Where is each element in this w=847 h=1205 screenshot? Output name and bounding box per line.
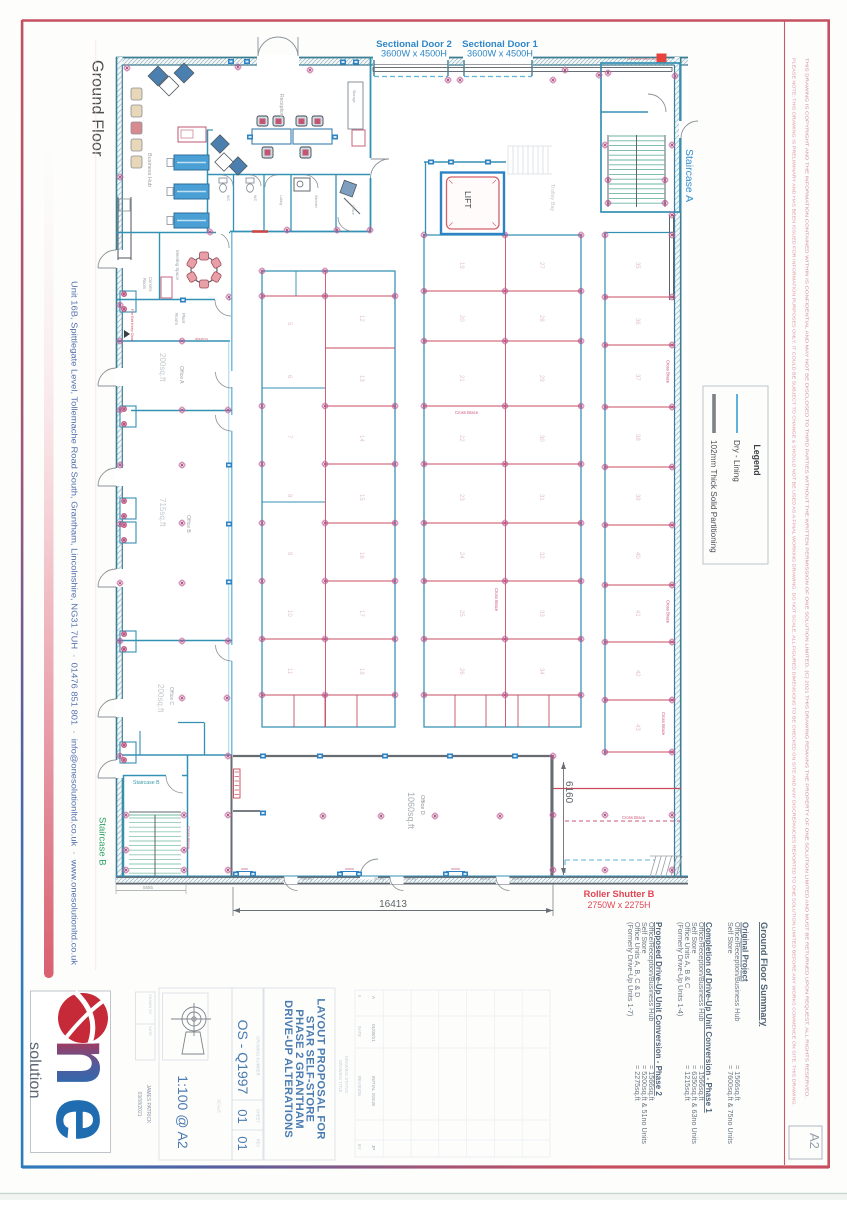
svg-text:38: 38 xyxy=(634,434,640,441)
svg-text:glazing: glazing xyxy=(270,877,280,881)
svg-text:Comms: Comms xyxy=(148,277,153,291)
svg-text:WC: WC xyxy=(253,195,257,202)
svg-text:102mm Thick Solid Partitioning: 102mm Thick Solid Partitioning xyxy=(709,440,718,553)
svg-text:Office A: Office A xyxy=(178,366,184,384)
svg-text:6160: 6160 xyxy=(563,781,574,804)
svg-text:Dry - Lining: Dry - Lining xyxy=(732,440,741,482)
svg-text:3600W x 4500H: 3600W x 4500H xyxy=(467,49,533,59)
svg-text:Ground Floor Summary: Ground Floor Summary xyxy=(759,922,769,1027)
svg-text:DRAWING TITLE: DRAWING TITLE xyxy=(338,1060,343,1093)
svg-text:Self Store: Self Store xyxy=(726,922,735,954)
svg-text:22: 22 xyxy=(458,435,464,442)
svg-text:Office C: Office C xyxy=(168,687,174,705)
svg-text:Cross Brace: Cross Brace xyxy=(622,815,646,820)
svg-text:39: 39 xyxy=(634,494,640,501)
svg-text:= 1215sq.ft: = 1215sq.ft xyxy=(683,1065,692,1101)
svg-text:glazing: glazing xyxy=(406,877,416,881)
svg-text:REV: REV xyxy=(256,1139,261,1148)
svg-text:Staircase A: Staircase A xyxy=(683,149,695,202)
svg-text:03/08/2021: 03/08/2021 xyxy=(136,1091,142,1116)
svg-text:13: 13 xyxy=(358,375,364,382)
svg-text:DRAWING STATUS: DRAWING STATUS xyxy=(344,1056,349,1093)
svg-text:JP: JP xyxy=(371,1145,376,1150)
svg-text:16: 16 xyxy=(358,552,364,559)
svg-text:31: 31 xyxy=(538,494,544,501)
svg-text:25: 25 xyxy=(458,610,464,617)
svg-text:Plant: Plant xyxy=(181,313,186,324)
svg-text:(Formerly Drive-Up Units 1-4): (Formerly Drive-Up Units 1-4) xyxy=(676,922,685,1016)
svg-text:Staircase B: Staircase B xyxy=(133,780,160,786)
svg-text:36: 36 xyxy=(634,318,640,325)
svg-text:BY: BY xyxy=(357,1144,362,1150)
svg-text:Unit 16B, Spittlegate Level, T: Unit 16B, Spittlegate Level, Tollemache … xyxy=(70,281,80,966)
svg-text:SCALE: SCALE xyxy=(217,1099,222,1113)
svg-text:01: 01 xyxy=(235,1136,250,1150)
svg-text:24: 24 xyxy=(458,552,464,559)
svg-text:glazing: glazing xyxy=(302,877,312,881)
svg-text:42: 42 xyxy=(634,670,640,677)
svg-text:200sq.ft: 200sq.ft xyxy=(158,353,167,382)
svg-text:glazing: glazing xyxy=(512,877,522,881)
svg-text:glazing: glazing xyxy=(195,336,208,341)
svg-text:Staircase B: Staircase B xyxy=(97,817,108,866)
svg-text:SHEET: SHEET xyxy=(256,1109,261,1123)
svg-text:200sq.ft: 200sq.ft xyxy=(156,684,165,713)
svg-text:glazing: glazing xyxy=(480,877,490,881)
svg-text:20: 20 xyxy=(458,315,464,322)
svg-text:26: 26 xyxy=(458,668,464,675)
svg-text:LIFT: LIFT xyxy=(463,191,473,208)
svg-text:DRIVE-UP ALTERATIONS: DRIVE-UP ALTERATIONS xyxy=(282,1000,294,1138)
svg-text:PLEASE NOTE: THIS DRAWING IS P: PLEASE NOTE: THIS DRAWING IS PRELIMINARY… xyxy=(791,58,797,1106)
svg-text:Lobby: Lobby xyxy=(279,195,283,205)
svg-text:= 7600sq.ft & 75no Units: = 7600sq.ft & 75no Units xyxy=(726,1065,735,1144)
svg-text:17: 17 xyxy=(358,610,364,617)
svg-text:Cross Brace: Cross Brace xyxy=(455,410,479,415)
svg-text:THIS DRAWING IS COPYRIGHT AND: THIS DRAWING IS COPYRIGHT AND THE INFORM… xyxy=(804,58,810,1098)
svg-text:19: 19 xyxy=(458,262,464,269)
svg-text:Room: Room xyxy=(142,278,147,290)
svg-text:3600W x 4500H: 3600W x 4500H xyxy=(381,49,447,59)
svg-text:WC: WC xyxy=(226,195,230,202)
svg-text:Business Hub: Business Hub xyxy=(146,153,152,187)
svg-text:Meeting Space: Meeting Space xyxy=(175,250,180,281)
svg-text:Kitchen: Kitchen xyxy=(314,195,318,208)
svg-text:Cross Brace: Cross Brace xyxy=(661,712,666,736)
svg-text:40: 40 xyxy=(634,552,640,559)
svg-text:2750W x 2275H: 2750W x 2275H xyxy=(587,900,650,910)
svg-text:(Formerly Drive-Up Units 1-7): (Formerly Drive-Up Units 1-7) xyxy=(626,922,635,1016)
svg-text:30: 30 xyxy=(538,435,544,442)
svg-text:29: 29 xyxy=(538,375,544,382)
svg-text:Cross Brace: Cross Brace xyxy=(186,826,191,850)
svg-text:715sq.ft: 715sq.ft xyxy=(158,498,167,527)
svg-text:Office: Office xyxy=(351,205,355,215)
svg-text:Room: Room xyxy=(174,313,179,325)
svg-text:= 2275sq.ft: = 2275sq.ft xyxy=(633,1065,642,1101)
svg-text:Cross Brace: Cross Brace xyxy=(666,360,671,384)
svg-text:43: 43 xyxy=(634,724,640,731)
svg-text:12: 12 xyxy=(358,315,364,322)
svg-text:Office D: Office D xyxy=(419,795,425,815)
svg-text:14: 14 xyxy=(358,435,364,442)
svg-text:01/08/21: 01/08/21 xyxy=(371,1024,376,1042)
svg-text:23: 23 xyxy=(458,494,464,501)
svg-text:11: 11 xyxy=(286,668,292,675)
svg-text:1060sq.ft: 1060sq.ft xyxy=(406,792,416,830)
svg-text:15: 15 xyxy=(358,494,364,501)
svg-text:Roller Shutter B: Roller Shutter B xyxy=(584,889,655,899)
svg-text:Dry Riser Inlet Cab: Dry Riser Inlet Cab xyxy=(627,57,656,61)
svg-text:32: 32 xyxy=(538,552,544,559)
svg-text:Ground Floor: Ground Floor xyxy=(89,60,106,157)
svg-text:Reception: Reception xyxy=(278,94,284,117)
svg-text:Cross Brace: Cross Brace xyxy=(494,588,499,612)
svg-text:DRAWING NUMBER: DRAWING NUMBER xyxy=(256,1036,261,1075)
svg-text:1:100 @ A2: 1:100 @ A2 xyxy=(175,1075,191,1149)
svg-text:21: 21 xyxy=(458,375,464,382)
svg-text:Legend: Legend xyxy=(752,444,762,475)
svg-text:solution: solution xyxy=(26,1042,43,1099)
svg-text:DATE: DATE xyxy=(148,1026,152,1036)
svg-text:Storage: Storage xyxy=(352,90,356,103)
svg-text:A2: A2 xyxy=(807,1133,822,1149)
svg-text:34: 34 xyxy=(538,668,544,675)
svg-text:27: 27 xyxy=(538,262,544,269)
svg-text:Cross Brace: Cross Brace xyxy=(666,600,671,624)
svg-text:glazing: glazing xyxy=(374,877,384,881)
svg-text:10: 10 xyxy=(286,610,292,617)
svg-text:n: n xyxy=(40,1038,129,1087)
svg-text:33: 33 xyxy=(538,610,544,617)
svg-text:DATE: DATE xyxy=(357,1026,362,1037)
svg-text:e: e xyxy=(40,1097,129,1142)
svg-text:5585: 5585 xyxy=(143,885,154,890)
svg-text:41: 41 xyxy=(634,610,640,617)
svg-text:35: 35 xyxy=(634,262,640,269)
svg-text:INITIAL ISSUE: INITIAL ISSUE xyxy=(371,1076,376,1106)
svg-text:JAMES PATRICK: JAMES PATRICK xyxy=(145,1085,151,1125)
svg-text:Fire Exit Keep Clear: Fire Exit Keep Clear xyxy=(130,309,134,342)
svg-text:Trolley Bay: Trolley Bay xyxy=(549,184,555,212)
svg-text:DRAWN BY: DRAWN BY xyxy=(148,994,152,1015)
svg-text:Office B: Office B xyxy=(185,515,191,533)
svg-text:16413: 16413 xyxy=(379,899,407,910)
svg-text:37: 37 xyxy=(634,374,640,381)
svg-text:REVISION: REVISION xyxy=(357,1076,362,1096)
svg-text:OS - Q1997: OS - Q1997 xyxy=(235,1020,251,1095)
svg-text:18: 18 xyxy=(358,668,364,675)
svg-text:28: 28 xyxy=(538,315,544,322)
svg-text:01: 01 xyxy=(235,1109,250,1123)
